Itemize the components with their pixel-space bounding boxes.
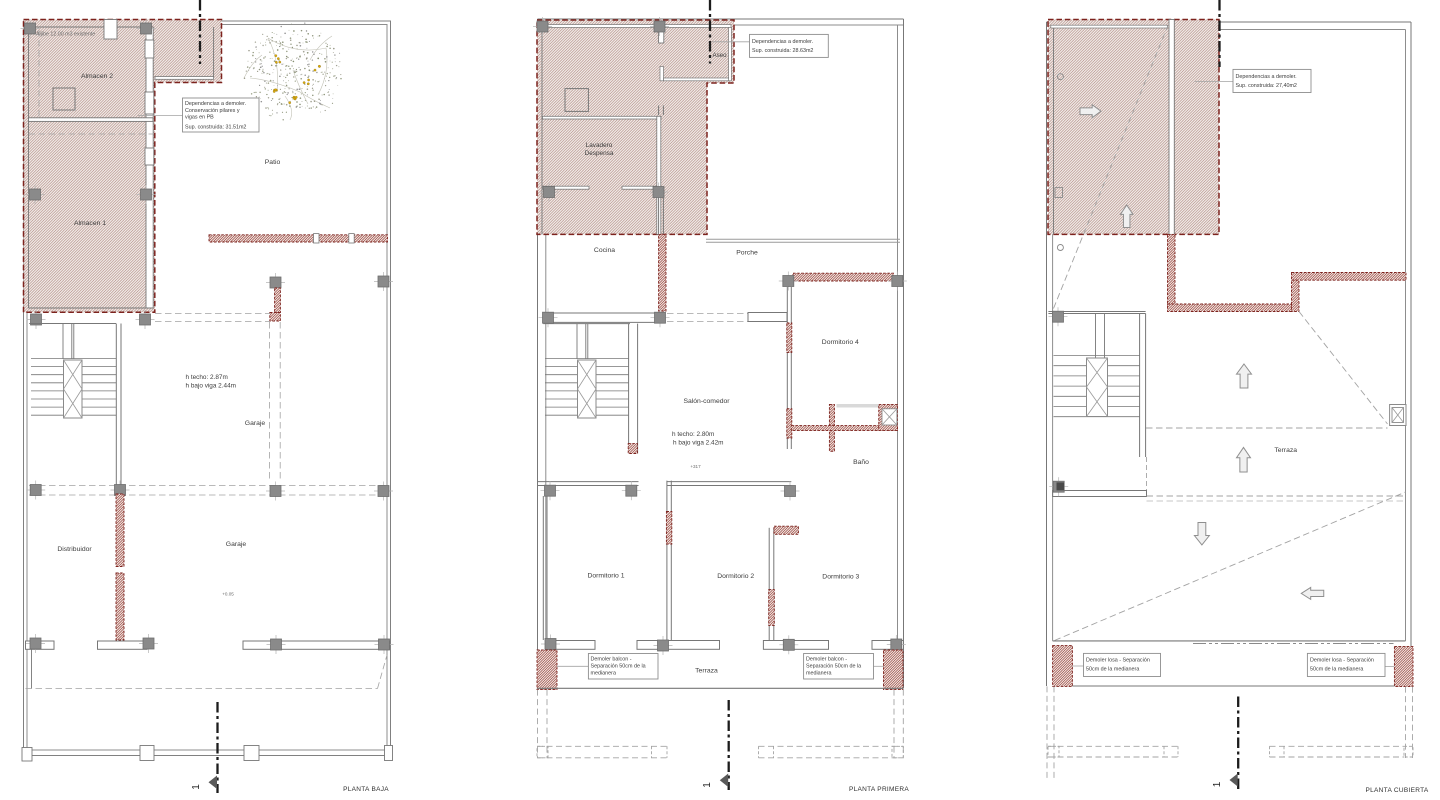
svg-text:h bajo viga 2.42m: h bajo viga 2.42m — [673, 440, 723, 447]
svg-text:Separación 50cm de la: Separación 50cm de la — [806, 664, 861, 670]
svg-text:Dependencias a demoler.: Dependencias a demoler. — [1236, 74, 1297, 80]
svg-text:Separación 50cm de la: Separación 50cm de la — [591, 664, 646, 670]
svg-text:1: 1 — [702, 782, 713, 788]
svg-text:Sup. construida: 31.51m2: Sup. construida: 31.51m2 — [185, 125, 246, 131]
svg-text:Demoler losa - Separación: Demoler losa - Separación — [1310, 658, 1374, 664]
svg-text:Almacen 1: Almacen 1 — [74, 220, 106, 227]
svg-text:1: 1 — [1212, 781, 1223, 787]
svg-text:h techo: 2.80m: h techo: 2.80m — [672, 431, 714, 438]
svg-text:Dormitorio 4: Dormitorio 4 — [822, 339, 859, 346]
svg-text:Demoler balcon -: Demoler balcon - — [591, 657, 632, 663]
svg-text:medianera: medianera — [591, 671, 616, 677]
svg-text:vigas en PB: vigas en PB — [185, 115, 214, 121]
svg-text:Demoler balcon -: Demoler balcon - — [806, 657, 847, 663]
svg-text:h bajo viga 2.44m: h bajo viga 2.44m — [186, 383, 236, 390]
svg-text:50cm de la medianera: 50cm de la medianera — [1310, 667, 1363, 673]
svg-text:Demoler losa - Separación: Demoler losa - Separación — [1086, 658, 1150, 664]
svg-text:1: 1 — [191, 784, 202, 790]
svg-text:Dormitorio 3: Dormitorio 3 — [822, 574, 859, 581]
svg-text:PLANTA CUBIERTA: PLANTA CUBIERTA — [1365, 787, 1428, 794]
svg-text:Patio: Patio — [265, 159, 281, 166]
svg-text:h techo: 2.87m: h techo: 2.87m — [186, 374, 228, 381]
svg-text:Baño: Baño — [853, 459, 869, 466]
svg-text:Conservación pilares y: Conservación pilares y — [185, 108, 240, 114]
svg-text:Lavadero: Lavadero — [586, 142, 613, 149]
svg-text:Distribuidor: Distribuidor — [57, 546, 92, 553]
svg-text:Dependencias a demoler.: Dependencias a demoler. — [752, 39, 813, 45]
svg-text:Dependencias a demoler.: Dependencias a demoler. — [185, 101, 246, 107]
svg-text:Sup. construida: 27,40m2: Sup. construida: 27,40m2 — [1236, 83, 1297, 89]
svg-text:Aljibe 12.00 m3 existente: Aljibe 12.00 m3 existente — [36, 32, 95, 38]
svg-text:Despensa: Despensa — [585, 150, 614, 157]
svg-text:+0.05: +0.05 — [222, 592, 234, 597]
svg-text:Aseo: Aseo — [712, 52, 727, 59]
svg-text:Cocina: Cocina — [594, 247, 615, 254]
svg-text:Garaje: Garaje — [245, 420, 266, 427]
svg-text:Garaje: Garaje — [226, 541, 247, 548]
svg-text:50cm de la medianera: 50cm de la medianera — [1086, 667, 1139, 673]
svg-text:medianera: medianera — [806, 671, 831, 677]
svg-text:Terraza: Terraza — [1274, 447, 1297, 454]
svg-text:PLANTA PRIMERA: PLANTA PRIMERA — [849, 786, 909, 793]
svg-text:Dormitorio 1: Dormitorio 1 — [587, 573, 624, 580]
svg-text:Sup. construida: 28.63m2: Sup. construida: 28.63m2 — [752, 48, 813, 54]
svg-text:Terraza: Terraza — [695, 668, 718, 675]
svg-text:Porche: Porche — [736, 250, 758, 257]
svg-text:PLANTA BAJA: PLANTA BAJA — [343, 786, 389, 793]
svg-text:Salón-comedor: Salón-comedor — [683, 398, 730, 405]
svg-text:+317: +317 — [690, 464, 701, 469]
svg-text:Almacen 2: Almacen 2 — [81, 73, 113, 80]
svg-text:Dormitorio 2: Dormitorio 2 — [717, 573, 754, 580]
